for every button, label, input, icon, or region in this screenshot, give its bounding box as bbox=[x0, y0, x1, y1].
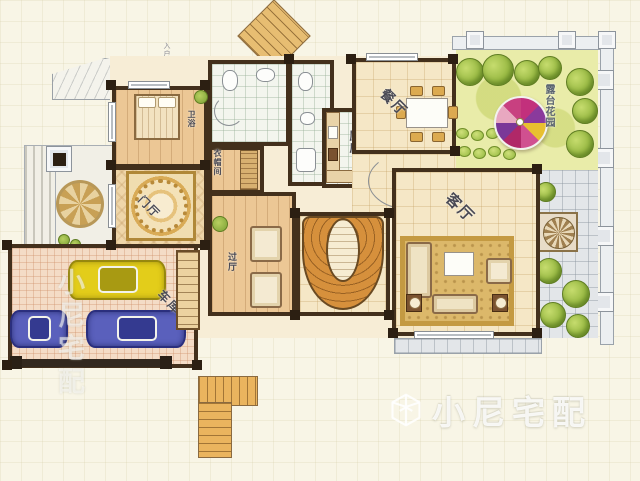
tree bbox=[538, 56, 562, 80]
floor-plan: 入户花园 露台花园 bbox=[0, 0, 640, 481]
column bbox=[448, 54, 458, 64]
tree bbox=[572, 98, 598, 124]
dining-chair bbox=[432, 86, 445, 96]
sink bbox=[300, 112, 315, 125]
sink bbox=[256, 68, 275, 82]
dining-chair bbox=[410, 132, 423, 142]
pilaster bbox=[598, 31, 616, 49]
car-cabin bbox=[117, 316, 157, 341]
tree bbox=[482, 54, 514, 86]
porch-floor-rosette bbox=[56, 180, 104, 228]
column bbox=[200, 240, 210, 250]
column bbox=[532, 328, 542, 338]
staircase-center-oval bbox=[326, 218, 360, 282]
column bbox=[200, 160, 210, 170]
kitchen-sink bbox=[328, 126, 338, 139]
armchair bbox=[250, 272, 282, 308]
column bbox=[290, 208, 300, 218]
dining-chair bbox=[448, 106, 458, 119]
column bbox=[532, 164, 542, 174]
tree bbox=[514, 60, 540, 86]
window bbox=[108, 184, 116, 228]
lamp bbox=[409, 297, 421, 309]
parasol-center bbox=[516, 118, 524, 126]
column bbox=[450, 146, 460, 156]
column bbox=[106, 80, 116, 90]
column bbox=[384, 310, 394, 320]
lamp bbox=[495, 297, 507, 309]
column bbox=[290, 310, 300, 320]
bed-pillow bbox=[158, 97, 176, 108]
column bbox=[2, 360, 12, 370]
dining-table bbox=[406, 98, 448, 128]
bush bbox=[456, 128, 469, 139]
bush bbox=[503, 149, 516, 160]
column bbox=[106, 240, 116, 250]
tree bbox=[566, 130, 594, 158]
column bbox=[284, 54, 294, 64]
porch-column-core bbox=[53, 153, 66, 166]
south-porch bbox=[394, 338, 542, 354]
dining-chair bbox=[432, 132, 445, 142]
pilaster bbox=[558, 31, 576, 49]
armchair bbox=[250, 226, 282, 262]
column bbox=[384, 208, 394, 218]
bush bbox=[473, 148, 486, 159]
exterior-stair-lower bbox=[198, 402, 232, 458]
pilaster bbox=[466, 31, 484, 49]
window bbox=[128, 81, 170, 89]
column bbox=[200, 80, 210, 90]
tree bbox=[540, 302, 566, 328]
brand-cube-logo bbox=[388, 392, 424, 428]
window bbox=[414, 331, 494, 339]
terrace-medallion-center bbox=[543, 217, 575, 249]
garage-door-post bbox=[160, 356, 172, 369]
bed-pillow bbox=[138, 97, 156, 108]
tree bbox=[456, 58, 484, 86]
toilet bbox=[298, 72, 313, 91]
stove bbox=[328, 148, 338, 161]
dining-chair bbox=[410, 86, 423, 96]
side-watermark: 小尼宅配 bbox=[50, 268, 89, 400]
hall-label: 过厅 bbox=[226, 252, 239, 272]
tree bbox=[566, 314, 590, 338]
cloakroom-label: 衣帽间 bbox=[212, 149, 223, 176]
sofa-left bbox=[406, 242, 432, 298]
bath-label: 卫浴 bbox=[186, 110, 197, 128]
window bbox=[108, 102, 116, 142]
wardrobe bbox=[240, 150, 258, 190]
column bbox=[388, 328, 398, 338]
column bbox=[346, 54, 356, 64]
garage-door bbox=[16, 359, 164, 367]
coffee-table bbox=[444, 252, 474, 276]
window bbox=[366, 53, 418, 61]
column bbox=[2, 240, 12, 250]
tree bbox=[566, 68, 594, 96]
brand-watermark-text: 小尼宅配 bbox=[432, 386, 592, 434]
column bbox=[106, 160, 116, 170]
shower bbox=[296, 148, 316, 172]
car-cabin bbox=[98, 266, 137, 293]
armchair-right bbox=[486, 258, 512, 284]
door-swing-arc bbox=[214, 96, 244, 126]
bush bbox=[471, 130, 484, 141]
column bbox=[192, 360, 202, 370]
bush bbox=[488, 146, 501, 157]
toilet bbox=[222, 70, 238, 91]
garage-stair bbox=[176, 250, 200, 330]
tree bbox=[562, 280, 590, 308]
plant bbox=[212, 216, 228, 232]
sofa-bottom bbox=[432, 294, 478, 314]
terrace-garden-label: 露台花园 bbox=[541, 84, 556, 128]
plant bbox=[194, 90, 208, 104]
car-cabin bbox=[28, 316, 51, 341]
brand-watermark: 小尼宅配 bbox=[388, 386, 592, 434]
